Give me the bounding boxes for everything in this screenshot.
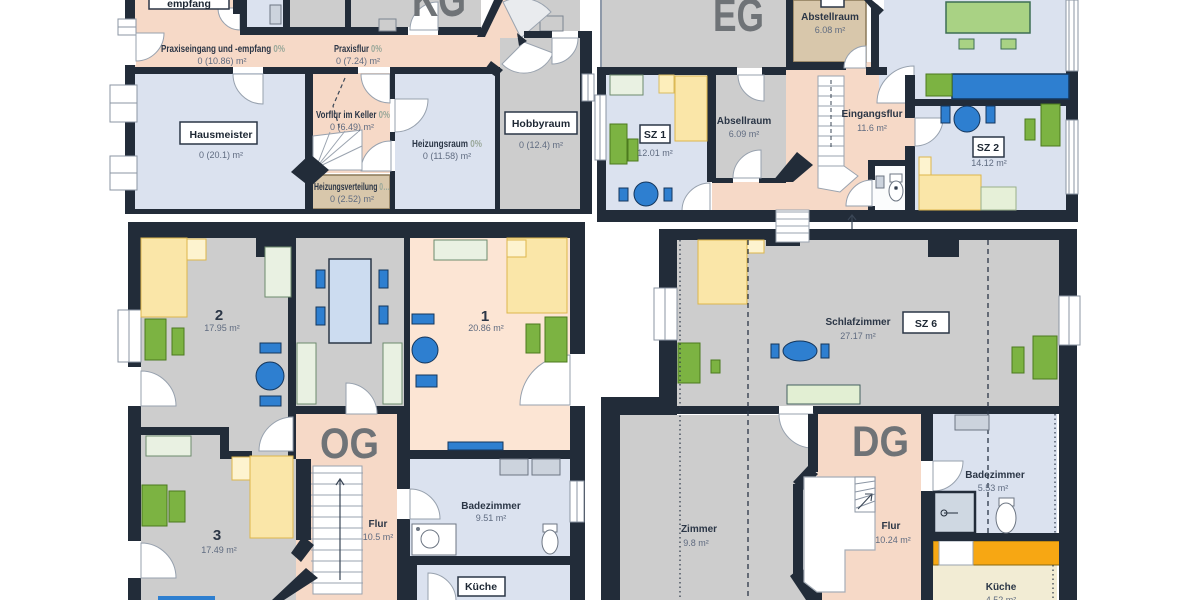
svg-text:Praxiseingang und -empfang 0%: Praxiseingang und -empfang 0% — [161, 44, 285, 55]
svg-text:20.86 m²: 20.86 m² — [468, 323, 504, 333]
svg-text:Abstellraum: Abstellraum — [801, 12, 859, 23]
svg-text:Küche: Küche — [986, 582, 1017, 593]
svg-text:0 (2.52) m²: 0 (2.52) m² — [330, 194, 374, 204]
svg-text:Küche: Küche — [465, 581, 497, 593]
svg-text:17.49 m²: 17.49 m² — [201, 545, 237, 555]
svg-text:6.08 m²: 6.08 m² — [815, 25, 846, 35]
svg-text:Hausmeister: Hausmeister — [189, 129, 252, 141]
svg-text:4.52 m²: 4.52 m² — [986, 595, 1017, 600]
svg-text:0 (12.4) m²: 0 (12.4) m² — [519, 140, 563, 150]
svg-text:Vorflur im Keller 0%: Vorflur im Keller 0% — [316, 110, 390, 121]
svg-text:Zimmer: Zimmer — [681, 524, 717, 535]
svg-text:0 (11.58) m²: 0 (11.58) m² — [423, 151, 471, 161]
svg-text:Eingangsflur: Eingangsflur — [841, 109, 902, 120]
svg-text:9.51 m²: 9.51 m² — [476, 513, 507, 523]
svg-text:Flur: Flur — [882, 521, 901, 532]
svg-text:empfang: empfang — [167, 0, 211, 10]
svg-text:0 (20.1) m²: 0 (20.1) m² — [199, 150, 243, 160]
svg-text:Absellraum: Absellraum — [717, 116, 772, 127]
svg-text:Heizungsverteilung 0…: Heizungsverteilung 0… — [314, 182, 390, 193]
svg-text:Flur: Flur — [369, 519, 388, 530]
svg-text:DG: DG — [852, 418, 909, 466]
svg-text:Schlafzimmer: Schlafzimmer — [825, 317, 890, 328]
svg-text:6.09 m²: 6.09 m² — [729, 129, 760, 139]
svg-text:0 (7.24) m²: 0 (7.24) m² — [336, 56, 380, 66]
svg-text:Hobbyraum: Hobbyraum — [512, 118, 570, 130]
svg-text:11.6 m²: 11.6 m² — [857, 123, 887, 133]
svg-text:5.53 m²: 5.53 m² — [978, 483, 1009, 493]
svg-text:SZ 2: SZ 2 — [977, 142, 999, 154]
svg-text:10.24 m²: 10.24 m² — [875, 535, 911, 545]
svg-text:17.95 m²: 17.95 m² — [204, 323, 240, 333]
svg-text:10.5 m²: 10.5 m² — [363, 532, 394, 542]
svg-text:3: 3 — [213, 527, 221, 544]
svg-text:Badezimmer: Badezimmer — [461, 501, 521, 512]
svg-text:9.8 m²: 9.8 m² — [683, 538, 709, 548]
svg-text:Badezimmer: Badezimmer — [965, 470, 1025, 481]
svg-text:27.17 m²: 27.17 m² — [840, 331, 876, 341]
svg-text:12.01 m²: 12.01 m² — [637, 148, 673, 158]
svg-text:KG: KG — [412, 0, 466, 28]
svg-text:Heizungsraum 0%: Heizungsraum 0% — [412, 139, 482, 150]
svg-text:SZ 6: SZ 6 — [915, 318, 937, 330]
svg-text:0 (6.49) m²: 0 (6.49) m² — [330, 122, 374, 132]
svg-text:OG: OG — [320, 420, 379, 468]
svg-text:Praxisflur 0%: Praxisflur 0% — [334, 44, 382, 55]
svg-text:SZ 1: SZ 1 — [644, 129, 666, 141]
svg-text:0 (10.86) m²: 0 (10.86) m² — [197, 56, 246, 66]
svg-text:EG: EG — [713, 0, 764, 41]
svg-text:14.12 m²: 14.12 m² — [971, 158, 1007, 168]
svg-text:2: 2 — [215, 307, 223, 324]
